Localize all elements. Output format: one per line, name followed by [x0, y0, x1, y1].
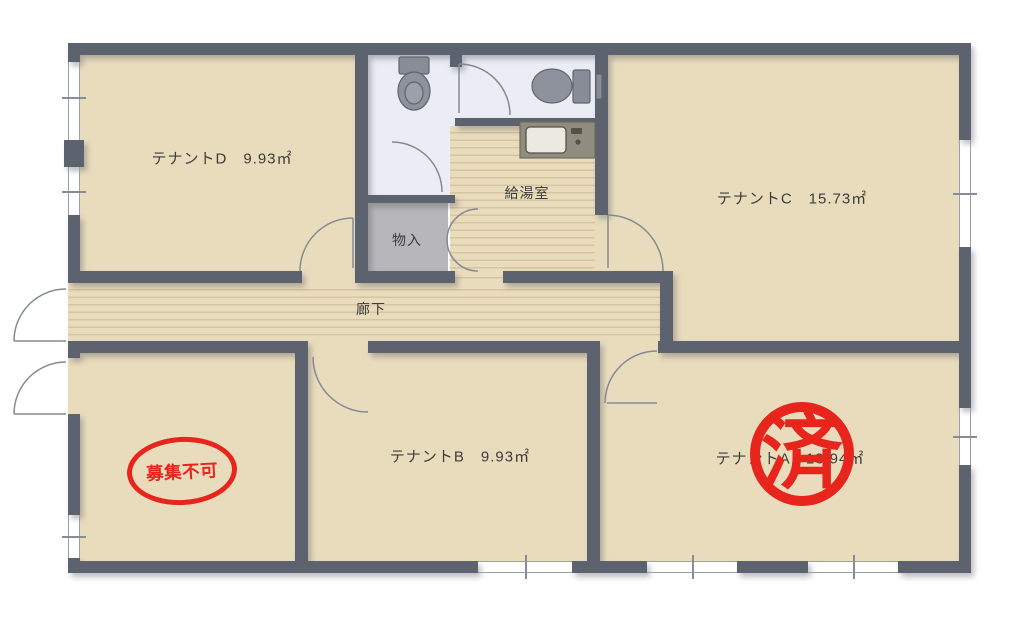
door-arc-toilet-1: [392, 142, 442, 192]
door-arc-tenant-d: [300, 218, 353, 271]
door-arc-tenant-a: [605, 351, 657, 403]
occupied-stamp-text: 済: [761, 413, 843, 495]
toilet-icon: [532, 69, 602, 103]
door-arc-corridor-exterior: [14, 289, 66, 341]
doors-fixtures-layer: [0, 0, 1009, 617]
occupied-stamp: 済: [750, 402, 854, 506]
not-available-stamp-text: 募集不可: [145, 457, 218, 486]
room-label-tenant-d: テナントD 9.93㎡: [151, 148, 292, 169]
room-label-kitchen: 給湯室: [505, 183, 550, 203]
door-arc-toilet-2: [459, 64, 510, 115]
sink-icon: [520, 122, 595, 158]
toilet-icon: [398, 57, 430, 110]
door-arc-tenant-b: [313, 357, 368, 412]
room-label-tenant-b: テナントB 9.93㎡: [390, 446, 530, 467]
room-label-tenant-c: テナントC 15.73㎡: [717, 188, 867, 209]
door-arc-tenant-c: [608, 215, 663, 271]
door-arc-left-room-exterior: [14, 362, 66, 414]
room-label-corridor: 廊下: [356, 299, 386, 319]
door-arc-storage: [447, 209, 478, 271]
room-label-storage: 物入: [392, 230, 422, 250]
floor-plan: テナントD 9.93㎡ テナントC 15.73㎡ テナントB 9.93㎡ テナン…: [0, 0, 1009, 617]
